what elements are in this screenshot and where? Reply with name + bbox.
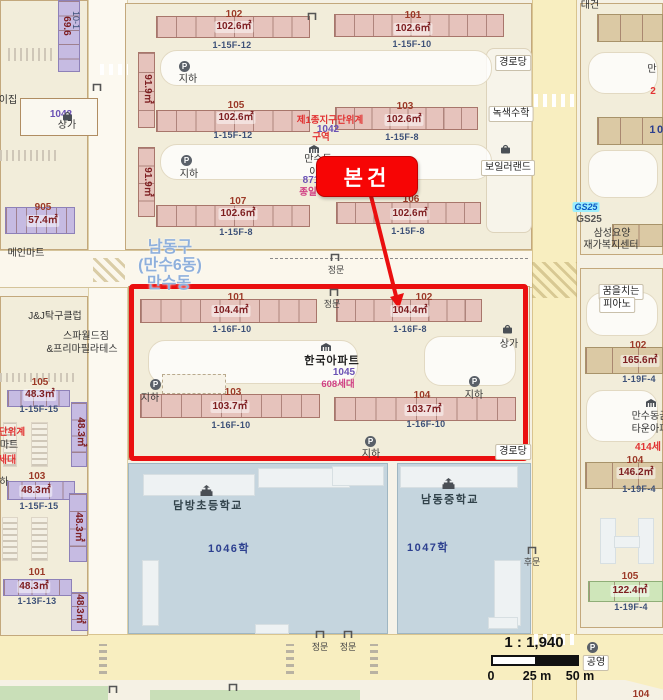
subject-label-text: 본건 <box>344 162 391 192</box>
bldg-a103-floors: 1-15F-8 <box>385 132 419 142</box>
bldg-c105-area: 48.3㎡ <box>23 389 56 401</box>
crosswalk-left-top <box>100 64 128 75</box>
namdong-middle: 남동중학교 <box>421 494 479 507</box>
crosswalk-top <box>534 94 575 107</box>
school-building-5 <box>255 624 289 634</box>
underground-5: 지하 <box>362 449 380 461</box>
underground-4: 지하 <box>465 390 483 402</box>
bldg-b101-no: 101 <box>228 292 245 304</box>
road-school-gap <box>388 462 397 634</box>
district-plan-line2: 구역 <box>312 133 329 144</box>
parking-stalls-4 <box>31 517 48 561</box>
bldg-tl-v-floors: 10-1 <box>71 11 81 29</box>
underground-3: 지하 <box>141 393 159 405</box>
bldg-a102-floors: 1-15F-12 <box>213 40 252 50</box>
bldg-a107-area: 102.6㎡ <box>218 208 257 220</box>
bldg-b103-floors: 1-16F-10 <box>212 420 251 430</box>
bldg-a102-area: 102.6㎡ <box>214 21 253 33</box>
scale-ratio: 1 : 1,940 <box>482 634 586 651</box>
gate-icon-bottom1 <box>315 630 325 638</box>
gate-icon-topright <box>307 12 317 20</box>
admin-district: 남동구 <box>148 239 192 257</box>
admin-subdistrict: (만수6동) <box>138 257 202 275</box>
bldg-c-v1-area: 48.3㎡ <box>74 417 86 446</box>
prima-pilates: &프리마필라테스 <box>46 344 117 356</box>
gate-bottom2-label: 정문 <box>340 642 357 652</box>
bag-icon-topleft <box>62 111 73 121</box>
bldg-b104-no: 104 <box>414 390 431 402</box>
gate-box-label: 정문 <box>324 299 341 309</box>
hanguk-apt-name: 한국아파트 <box>304 355 360 368</box>
bldg-b102-area: 104.4㎡ <box>390 305 429 317</box>
bldg-a101-area: 102.6㎡ <box>393 23 432 35</box>
lot-1045: 1045 <box>333 367 355 379</box>
edge-danwigye: 단위계 <box>0 428 25 439</box>
bldg-c-v2-area: 48.3㎡ <box>72 512 84 541</box>
gate-icon-back <box>527 546 537 554</box>
frag-2: 2 <box>650 86 656 98</box>
bldg-d105-area: 122.4㎡ <box>610 585 649 597</box>
noksaek-math: 녹색수학 <box>489 106 534 122</box>
road-dash-1 <box>99 644 107 674</box>
bldg-a106-floors: 1-15F-8 <box>391 226 425 236</box>
dream-piano-2: 피아노 <box>599 297 635 313</box>
bldg-a105-floors: 1-15F-12 <box>214 130 253 140</box>
school-building-1 <box>143 474 255 496</box>
households-414: 414세 <box>635 442 661 454</box>
parking-icon-2: P <box>181 155 192 166</box>
parking-hatch-2 <box>0 150 57 161</box>
driveway-loop-r2 <box>588 150 658 198</box>
bldg-b102-no: 102 <box>416 292 433 304</box>
spa-world-gym: 스파월드짐 <box>63 331 109 343</box>
bldg-b104-floors: 1-16F-10 <box>407 419 446 429</box>
scale-tick-25: 25 m <box>523 669 552 683</box>
main-mart: 메인마트 <box>8 248 45 260</box>
gate-mid-label: 정문 <box>328 265 345 275</box>
parking-stalls-3 <box>2 517 18 561</box>
bldg-a107-no: 107 <box>230 196 247 208</box>
bldg-a103-no: 103 <box>397 101 414 113</box>
bldg-d105-floors: 1-19F-4 <box>614 602 648 612</box>
h-building-bar <box>614 536 640 548</box>
senior-center-top: 경로당 <box>495 55 531 71</box>
bldg-a-v1-area: 91.9㎡ <box>141 74 153 103</box>
edge-sedae: 세대 <box>0 455 16 467</box>
subject-label: 본건 <box>316 156 418 197</box>
bldg-d104-floors: 1-19F-4 <box>622 484 656 494</box>
bldg-d104-no: 104 <box>627 455 644 467</box>
subject-area-outline <box>129 284 528 461</box>
road-left <box>88 0 128 636</box>
bldg-c105-no: 105 <box>32 377 49 389</box>
intersection-hatch <box>532 262 577 298</box>
bldg-a101-no: 101 <box>405 10 422 22</box>
bldg-c103-no: 103 <box>29 471 46 483</box>
road-middle <box>0 250 533 288</box>
school-icon-dambang <box>200 485 213 496</box>
gate-icon-topleft <box>92 83 102 91</box>
gate-icon-small2 <box>228 683 238 691</box>
road-dash-3 <box>370 644 378 674</box>
bldg-c103-area: 48.3㎡ <box>19 485 52 497</box>
green-strip-1 <box>0 686 108 700</box>
lot-1047-hak: 1047학 <box>407 542 449 555</box>
h-building-right <box>638 518 654 564</box>
school-icon-namdong <box>442 478 455 489</box>
driveway-loop-a1 <box>160 50 492 86</box>
town-apt-name1: 만수동금 <box>632 411 663 423</box>
dambang-elementary: 담방초등학교 <box>173 500 243 513</box>
gate-icon-bottom2 <box>343 630 353 638</box>
road-dash-2 <box>286 644 294 674</box>
frag-10: 10 <box>649 124 663 137</box>
samsung-care-2: 재가복지센터 <box>583 240 638 252</box>
parking-icon-5: P <box>365 436 376 447</box>
frag-daegeon: 대건 <box>581 0 599 12</box>
bldg-b104-area: 103.7㎡ <box>404 404 443 416</box>
school-building-3 <box>332 466 384 486</box>
boiler-land: 보일러랜드 <box>481 160 535 176</box>
jnj-pingpong: J&J탁구클럽 <box>28 311 81 323</box>
bldg-d105-no: 105 <box>622 571 639 583</box>
bldg-a-v2-area: 91.9㎡ <box>141 167 153 196</box>
parking-stalls-2 <box>31 422 48 467</box>
parking-hatch-1 <box>8 48 56 61</box>
bldg-a103-area: 102.6㎡ <box>384 114 423 126</box>
lane-divider <box>270 258 528 259</box>
bag-icon-shops <box>502 324 513 334</box>
bldg-905-area: 57.4㎡ <box>26 215 59 227</box>
bldg-a101-floors: 1-15F-10 <box>393 39 432 49</box>
bldg-905-no: 905 <box>35 202 52 214</box>
scale-tick-50: 50 m <box>566 669 595 683</box>
bldg-d102-floors: 1-19F-4 <box>622 374 656 384</box>
bldg-a102-no: 102 <box>226 9 243 21</box>
scale-bar-black <box>535 655 579 666</box>
gate-icon-small1 <box>108 685 118 693</box>
bldg-d102-area: 165.6㎡ <box>620 355 659 367</box>
shops-box: 상가 <box>500 339 518 351</box>
scale-bar-white <box>491 655 535 666</box>
gate-back-label: 후문 <box>524 557 541 567</box>
crosswalk-mid-left <box>93 258 125 282</box>
map-canvas: 102102.6㎡1-15F-1291.9㎡105102.6㎡1-15F-129… <box>0 0 663 700</box>
edge-ijip: 이집 <box>0 95 17 107</box>
service-building-column <box>486 48 532 233</box>
bldg-c105-floors: 1-15F-15 <box>20 404 59 414</box>
samsung-care-1: 삼성요양 <box>594 228 631 240</box>
building-row-t1 <box>597 14 663 42</box>
parking-icon-1: P <box>179 61 190 72</box>
school-building-8 <box>488 617 518 629</box>
bldg-a107-floors: 1-15F-8 <box>219 227 253 237</box>
bldg-a106-area: 102.6㎡ <box>390 208 429 220</box>
edge-mart: 마트 <box>0 440 18 452</box>
apartment-icon-hanguk <box>321 343 331 351</box>
households-608: 608세대 <box>321 380 354 391</box>
parking-icon-3: P <box>150 379 161 390</box>
gate-icon-box <box>329 288 339 296</box>
admin-neighborhood: 만수동 <box>147 275 191 293</box>
underground-2: 지하 <box>180 169 198 181</box>
bldg-b101-floors: 1-16F-10 <box>213 324 252 334</box>
scale-tick-0: 0 <box>488 669 495 683</box>
frag-104-bottom: 104 <box>633 689 650 700</box>
shops-topleft: 상가 <box>58 120 76 132</box>
gs25-name: GS25 <box>576 214 602 226</box>
bldg-d104-area: 146.2㎡ <box>616 467 655 479</box>
senior-center-2: 경로당 <box>495 444 531 460</box>
bldg-a105-no: 105 <box>228 100 245 112</box>
bldg-b102-floors: 1-16F-8 <box>393 324 427 334</box>
bldg-c103-floors: 1-15F-15 <box>20 501 59 511</box>
apartment-icon-town <box>646 399 656 407</box>
green-strip-2 <box>150 690 360 700</box>
bldg-b101-area: 104.4㎡ <box>211 305 250 317</box>
gs25-logo-text: GS25 <box>572 202 599 212</box>
parking-icon-public: P <box>587 642 598 653</box>
gate-icon-mid <box>330 253 340 261</box>
bldg-c101-no: 101 <box>29 567 46 579</box>
parking-icon-4: P <box>469 376 480 387</box>
bag-icon-boiler <box>500 144 511 154</box>
gate-bottom1-label: 정문 <box>312 642 329 652</box>
bldg-d102-no: 102 <box>630 340 647 352</box>
underground-1: 지하 <box>179 74 197 86</box>
lot-1046-hak: 1046학 <box>208 543 250 556</box>
bldg-b103-no: 103 <box>225 387 242 399</box>
bldg-b103-area: 103.7㎡ <box>210 401 249 413</box>
bldg-c-v3-area: 48.3㎡ <box>73 594 85 623</box>
school-building-4 <box>142 560 159 626</box>
bldg-a105-area: 102.6㎡ <box>216 112 255 124</box>
frag-man: 만 <box>647 64 656 76</box>
town-apt-name2: 타운아파 <box>632 424 663 436</box>
edge-ha: 하 <box>0 477 9 489</box>
school-building-6 <box>400 466 518 488</box>
bldg-c101-floors: 1-13F-13 <box>18 596 57 606</box>
bldg-c101-area: 48.3㎡ <box>17 581 50 593</box>
apartment-icon-1 <box>309 145 319 153</box>
jongil-text: 종일 <box>299 188 316 199</box>
